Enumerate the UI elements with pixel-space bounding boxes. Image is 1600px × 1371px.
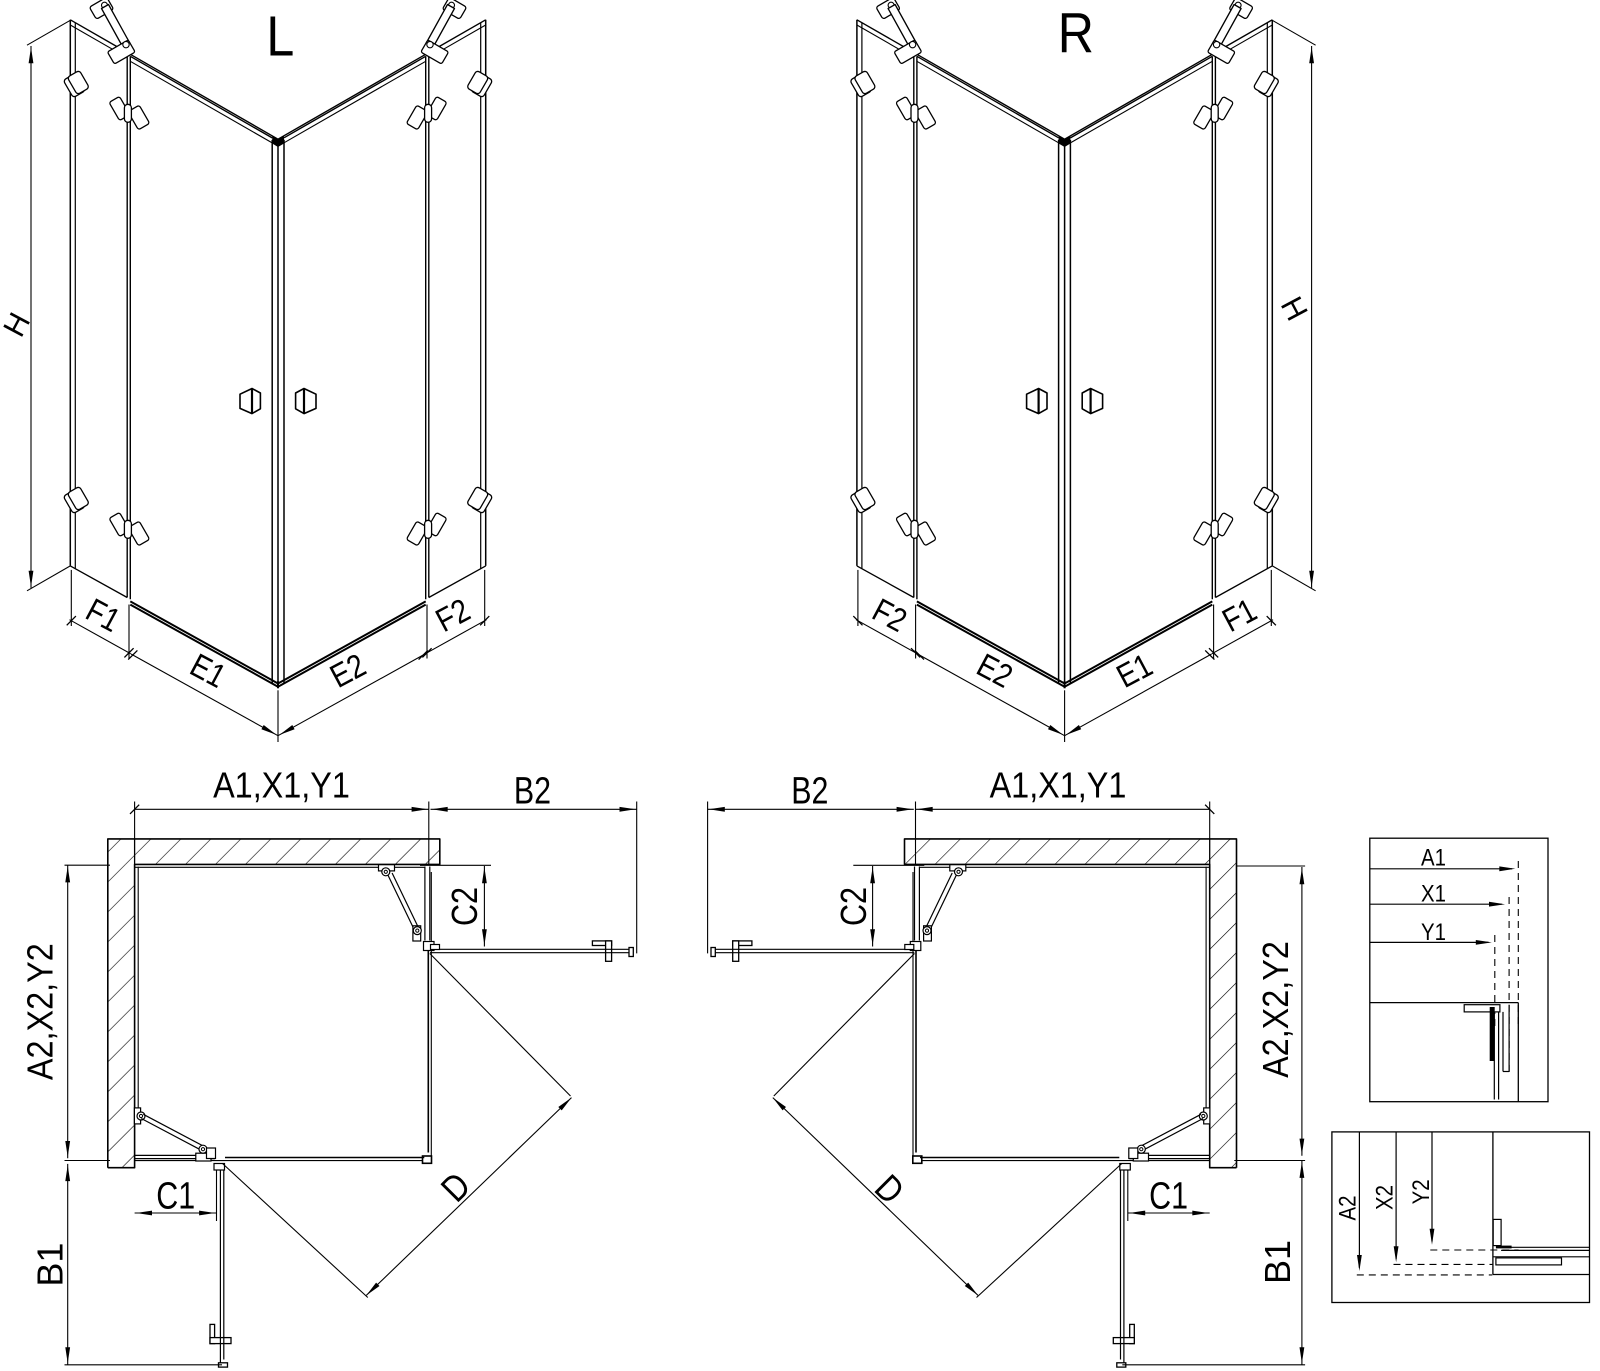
svg-text:Y1: Y1: [1421, 919, 1446, 946]
svg-text:X1: X1: [1421, 880, 1446, 907]
svg-text:L: L: [266, 5, 294, 69]
svg-text:B2: B2: [791, 770, 828, 812]
svg-text:A2,X2,Y2: A2,X2,Y2: [21, 943, 61, 1080]
svg-text:X2: X2: [1371, 1185, 1398, 1210]
svg-text:A2,X2,Y2: A2,X2,Y2: [1256, 941, 1296, 1078]
svg-text:A2: A2: [1334, 1196, 1361, 1221]
svg-text:R: R: [1058, 1, 1094, 65]
svg-text:B1: B1: [1257, 1240, 1298, 1284]
svg-text:B1: B1: [30, 1243, 71, 1287]
svg-text:Y2: Y2: [1408, 1179, 1435, 1204]
svg-text:C2: C2: [835, 887, 875, 926]
svg-text:C1: C1: [1149, 1175, 1188, 1217]
svg-text:A1: A1: [1421, 844, 1446, 871]
svg-text:B2: B2: [514, 770, 551, 812]
svg-text:A1,X1,Y1: A1,X1,Y1: [990, 766, 1127, 806]
svg-text:C1: C1: [156, 1175, 195, 1217]
svg-text:C2: C2: [446, 887, 486, 926]
svg-text:A1,X1,Y1: A1,X1,Y1: [213, 766, 350, 806]
